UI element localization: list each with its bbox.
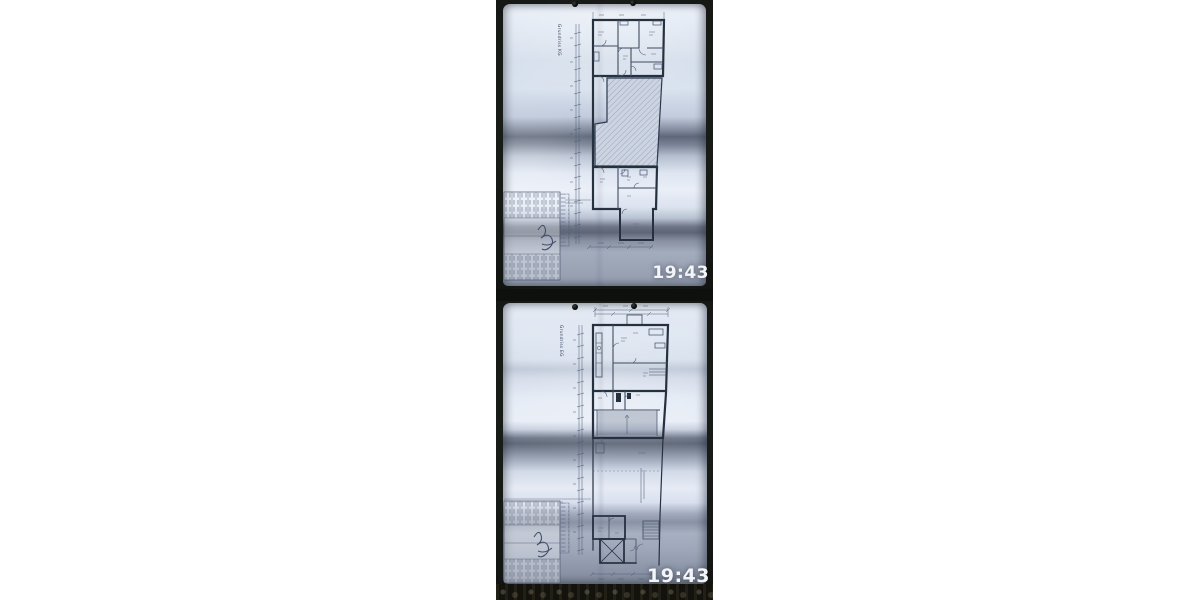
light-shaft-x: [600, 539, 624, 563]
photo-basement-plan[interactable]: Grundriss KG: [496, 0, 713, 289]
courtyard-annotation: [593, 453, 659, 503]
shaft-cores: [616, 393, 631, 402]
hatched-area: [595, 78, 662, 166]
interior-walls: [593, 325, 668, 563]
entrance-porch: [627, 315, 642, 325]
plan-title-rotated: Grundriss KG: [556, 24, 562, 56]
photo-gap: [496, 289, 713, 301]
pushpin-icon: [572, 1, 578, 7]
pushpin-icon: [572, 304, 578, 310]
screen-background: Grundriss KG: [0, 0, 1200, 600]
photo-timestamp: 19:43: [647, 565, 710, 587]
photo-groundfloor-plan[interactable]: Grundriss EG: [496, 301, 713, 600]
title-block: [504, 192, 569, 280]
door-arcs: [601, 343, 643, 551]
dimension-ladder: [570, 24, 581, 244]
small-stairs: [643, 524, 659, 536]
photo-timestamp: 19:43: [652, 263, 709, 283]
pushpin-icon: [631, 303, 637, 309]
staircase: [597, 410, 657, 436]
floor-plan-drawing-2: Grundriss EG: [503, 303, 707, 584]
blueprint-paper-2: Grundriss EG: [503, 303, 707, 584]
pushpin-icon: [630, 0, 636, 6]
floor-plan-drawing-1: Grundriss KG: [503, 4, 706, 286]
plan-title-rotated: Grundriss EG: [558, 325, 564, 357]
dimension-ladder: [573, 325, 584, 555]
title-block: [504, 501, 569, 583]
bottom-dimension-line: [590, 572, 654, 579]
blueprint-paper-1: Grundriss KG: [503, 4, 706, 286]
photo-strip: Grundriss KG: [496, 0, 713, 600]
